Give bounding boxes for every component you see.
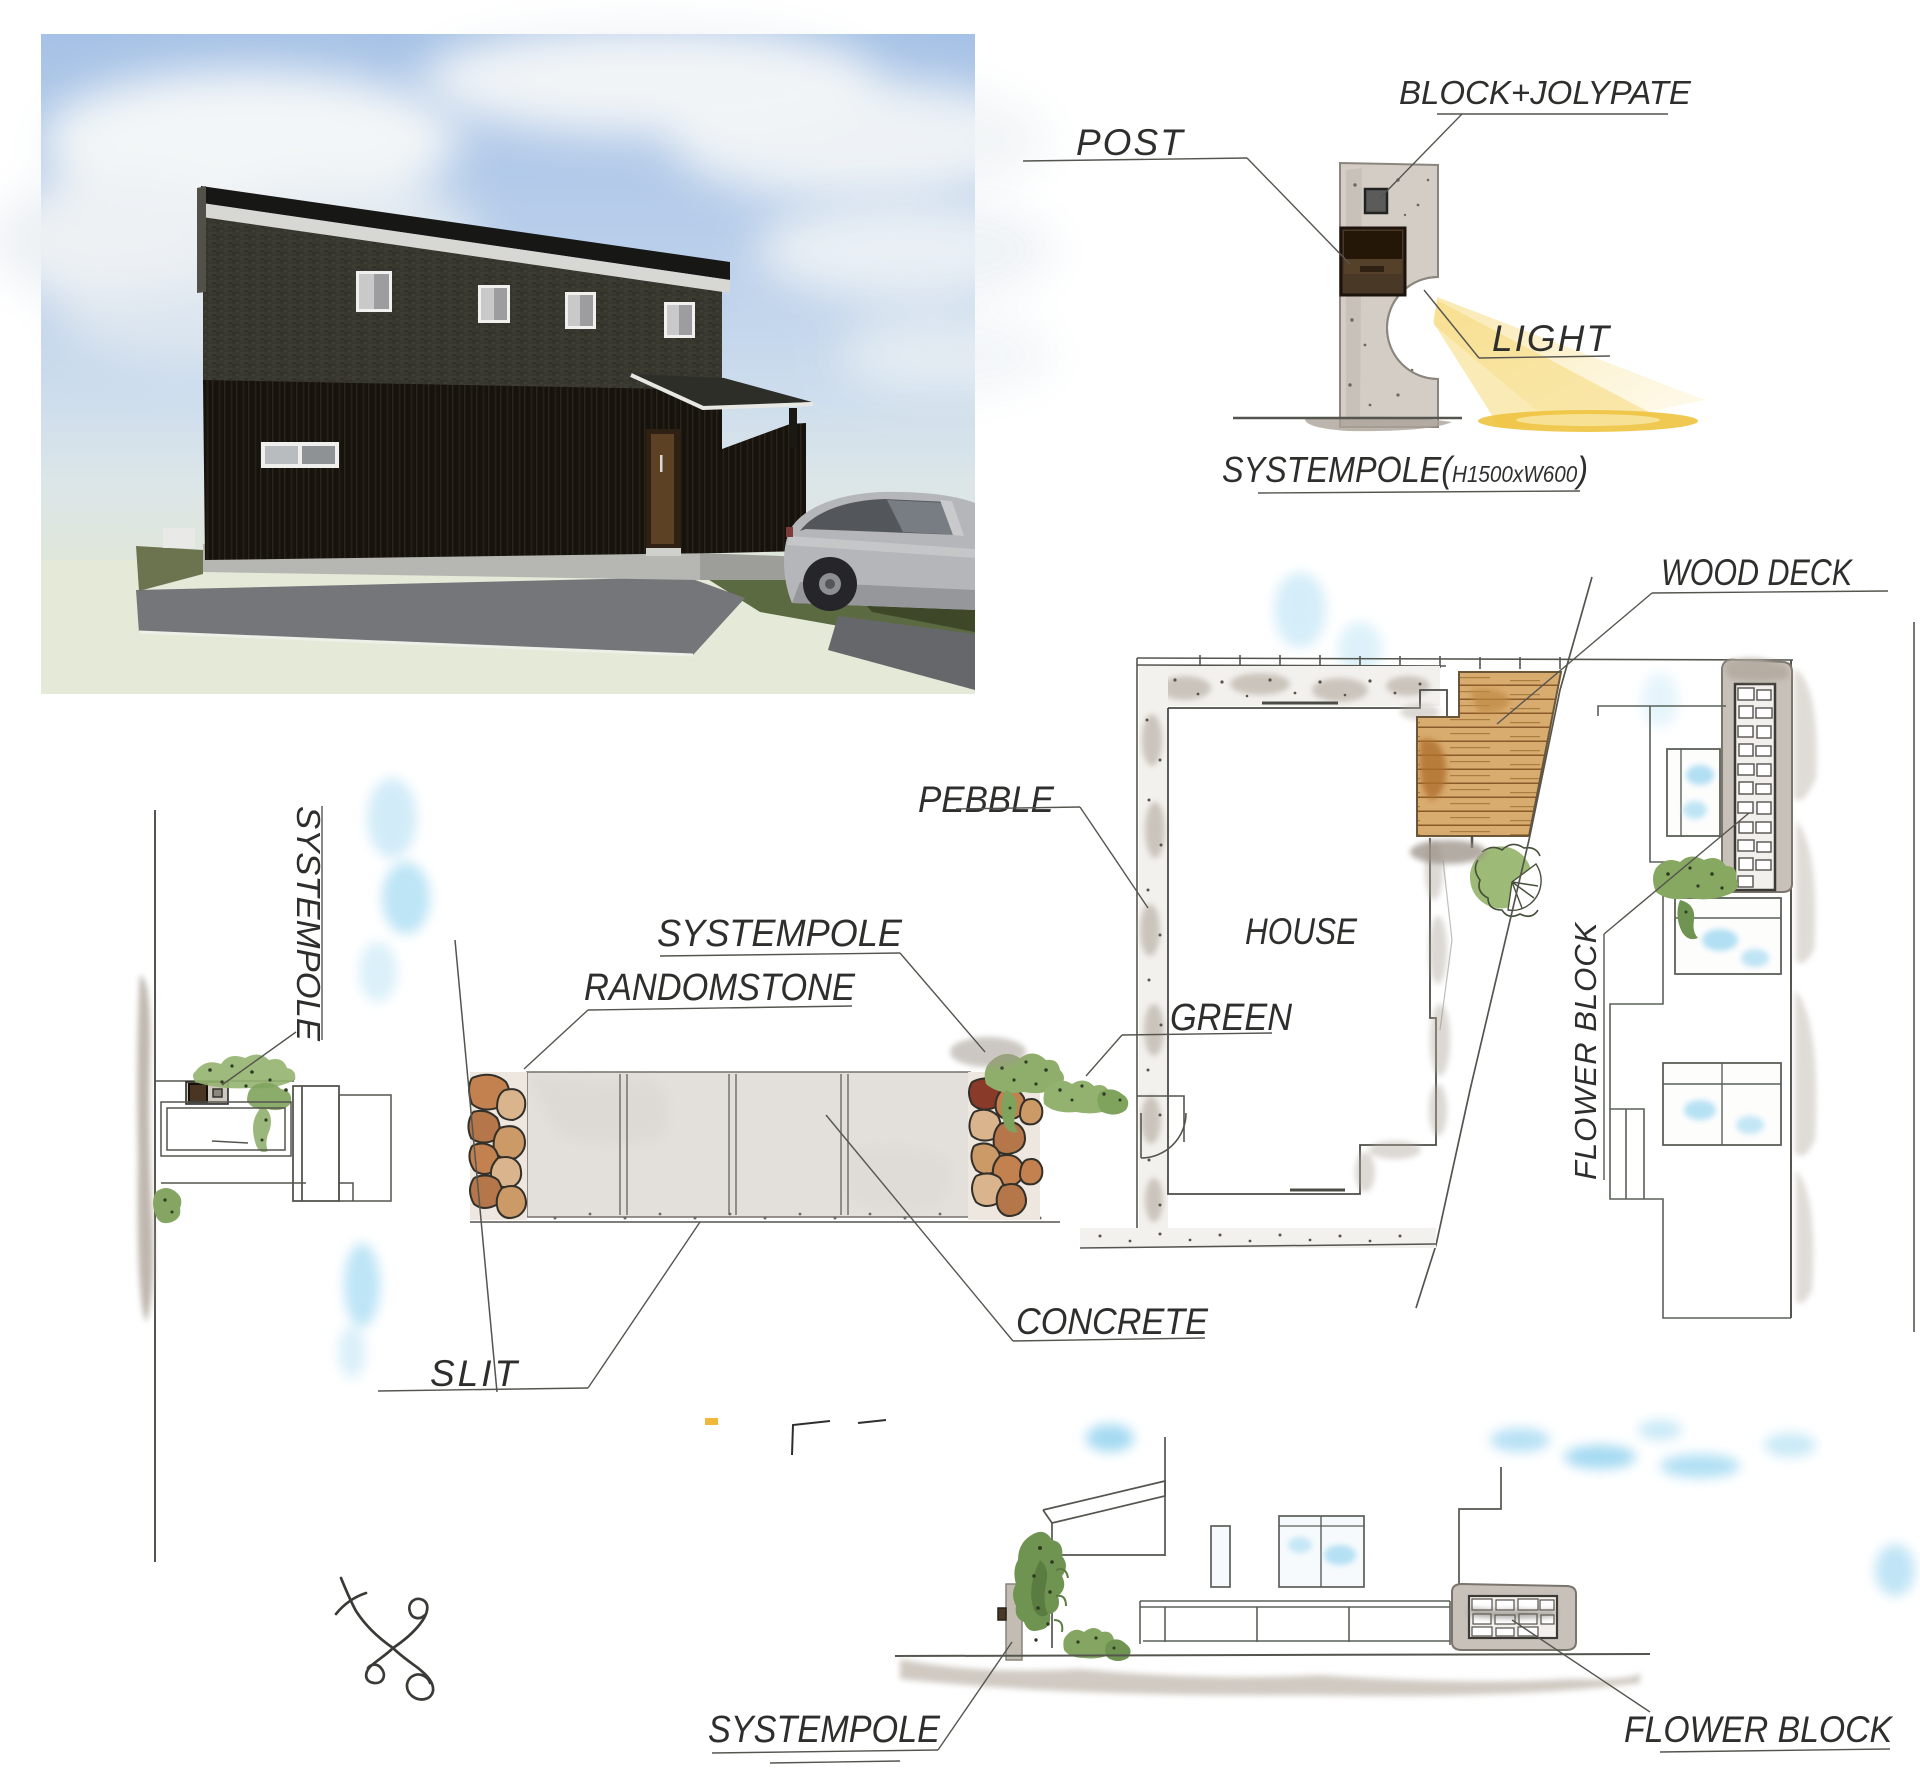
svg-text:LIGHT: LIGHT — [1492, 318, 1611, 359]
svg-text:POST: POST — [1076, 122, 1185, 163]
svg-text:HOUSE: HOUSE — [1245, 911, 1358, 952]
svg-text:FLOWER BLOCK: FLOWER BLOCK — [1568, 921, 1603, 1180]
svg-text:FLOWER BLOCK: FLOWER BLOCK — [1624, 1709, 1894, 1750]
svg-text:SLIT: SLIT — [430, 1353, 520, 1394]
svg-text:WOOD DECK: WOOD DECK — [1661, 552, 1854, 593]
svg-text:SYSTEMPOLE: SYSTEMPOLE — [708, 1709, 941, 1751]
svg-text:RANDOMSTONE: RANDOMSTONE — [584, 967, 856, 1009]
svg-text:CONCRETE: CONCRETE — [1016, 1301, 1209, 1342]
svg-text:GREEN: GREEN — [1170, 997, 1292, 1039]
svg-text:BLOCK+JOLYPATE: BLOCK+JOLYPATE — [1399, 74, 1692, 111]
svg-text:SYSTEMPOLE: SYSTEMPOLE — [657, 913, 903, 955]
svg-text:PEBBLE: PEBBLE — [918, 779, 1055, 820]
